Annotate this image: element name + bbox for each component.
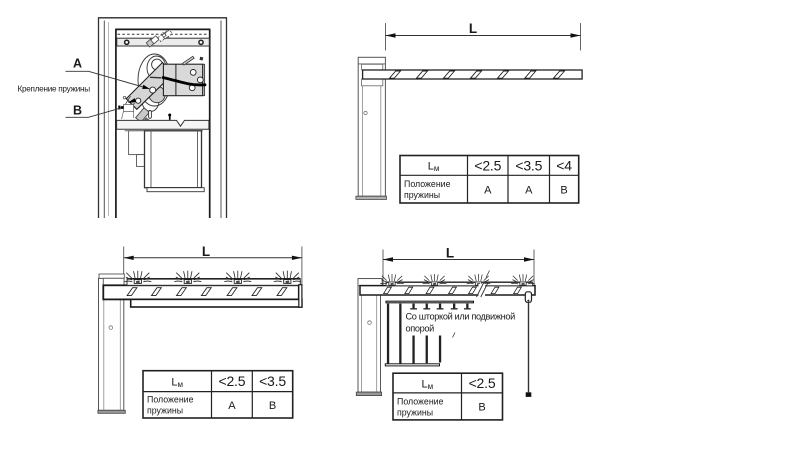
svg-text:A: A [73,57,82,71]
svg-text:Положение: Положение [147,394,194,404]
svg-text:B: B [560,184,567,196]
svg-text:Положение: Положение [404,179,451,189]
svg-text:L: L [202,244,210,259]
svg-text:пружины: пружины [147,405,183,415]
svg-text:Со шторкой или подвижной: Со шторкой или подвижной [406,312,516,322]
svg-text:<3.5: <3.5 [259,373,286,389]
svg-text:B: B [269,400,276,412]
svg-text:опорой: опорой [406,323,435,333]
svg-text:A: A [484,184,492,196]
svg-text:<2.5: <2.5 [469,375,496,391]
svg-text:Крепление пружины: Крепление пружины [18,84,91,93]
svg-text:L: L [469,21,477,36]
svg-text:B: B [73,104,82,118]
svg-text:L: L [446,246,454,261]
svg-text:Положение: Положение [397,397,444,407]
svg-text:<2.5: <2.5 [218,373,245,389]
svg-text:пружины: пружины [404,190,440,200]
svg-text:<3.5: <3.5 [515,157,542,173]
svg-text:<4: <4 [556,157,572,173]
svg-text:A: A [228,400,236,412]
svg-text:B: B [478,402,485,414]
svg-text:<2.5: <2.5 [474,157,501,173]
svg-text:A: A [525,184,533,196]
svg-text:пружины: пружины [397,408,433,418]
